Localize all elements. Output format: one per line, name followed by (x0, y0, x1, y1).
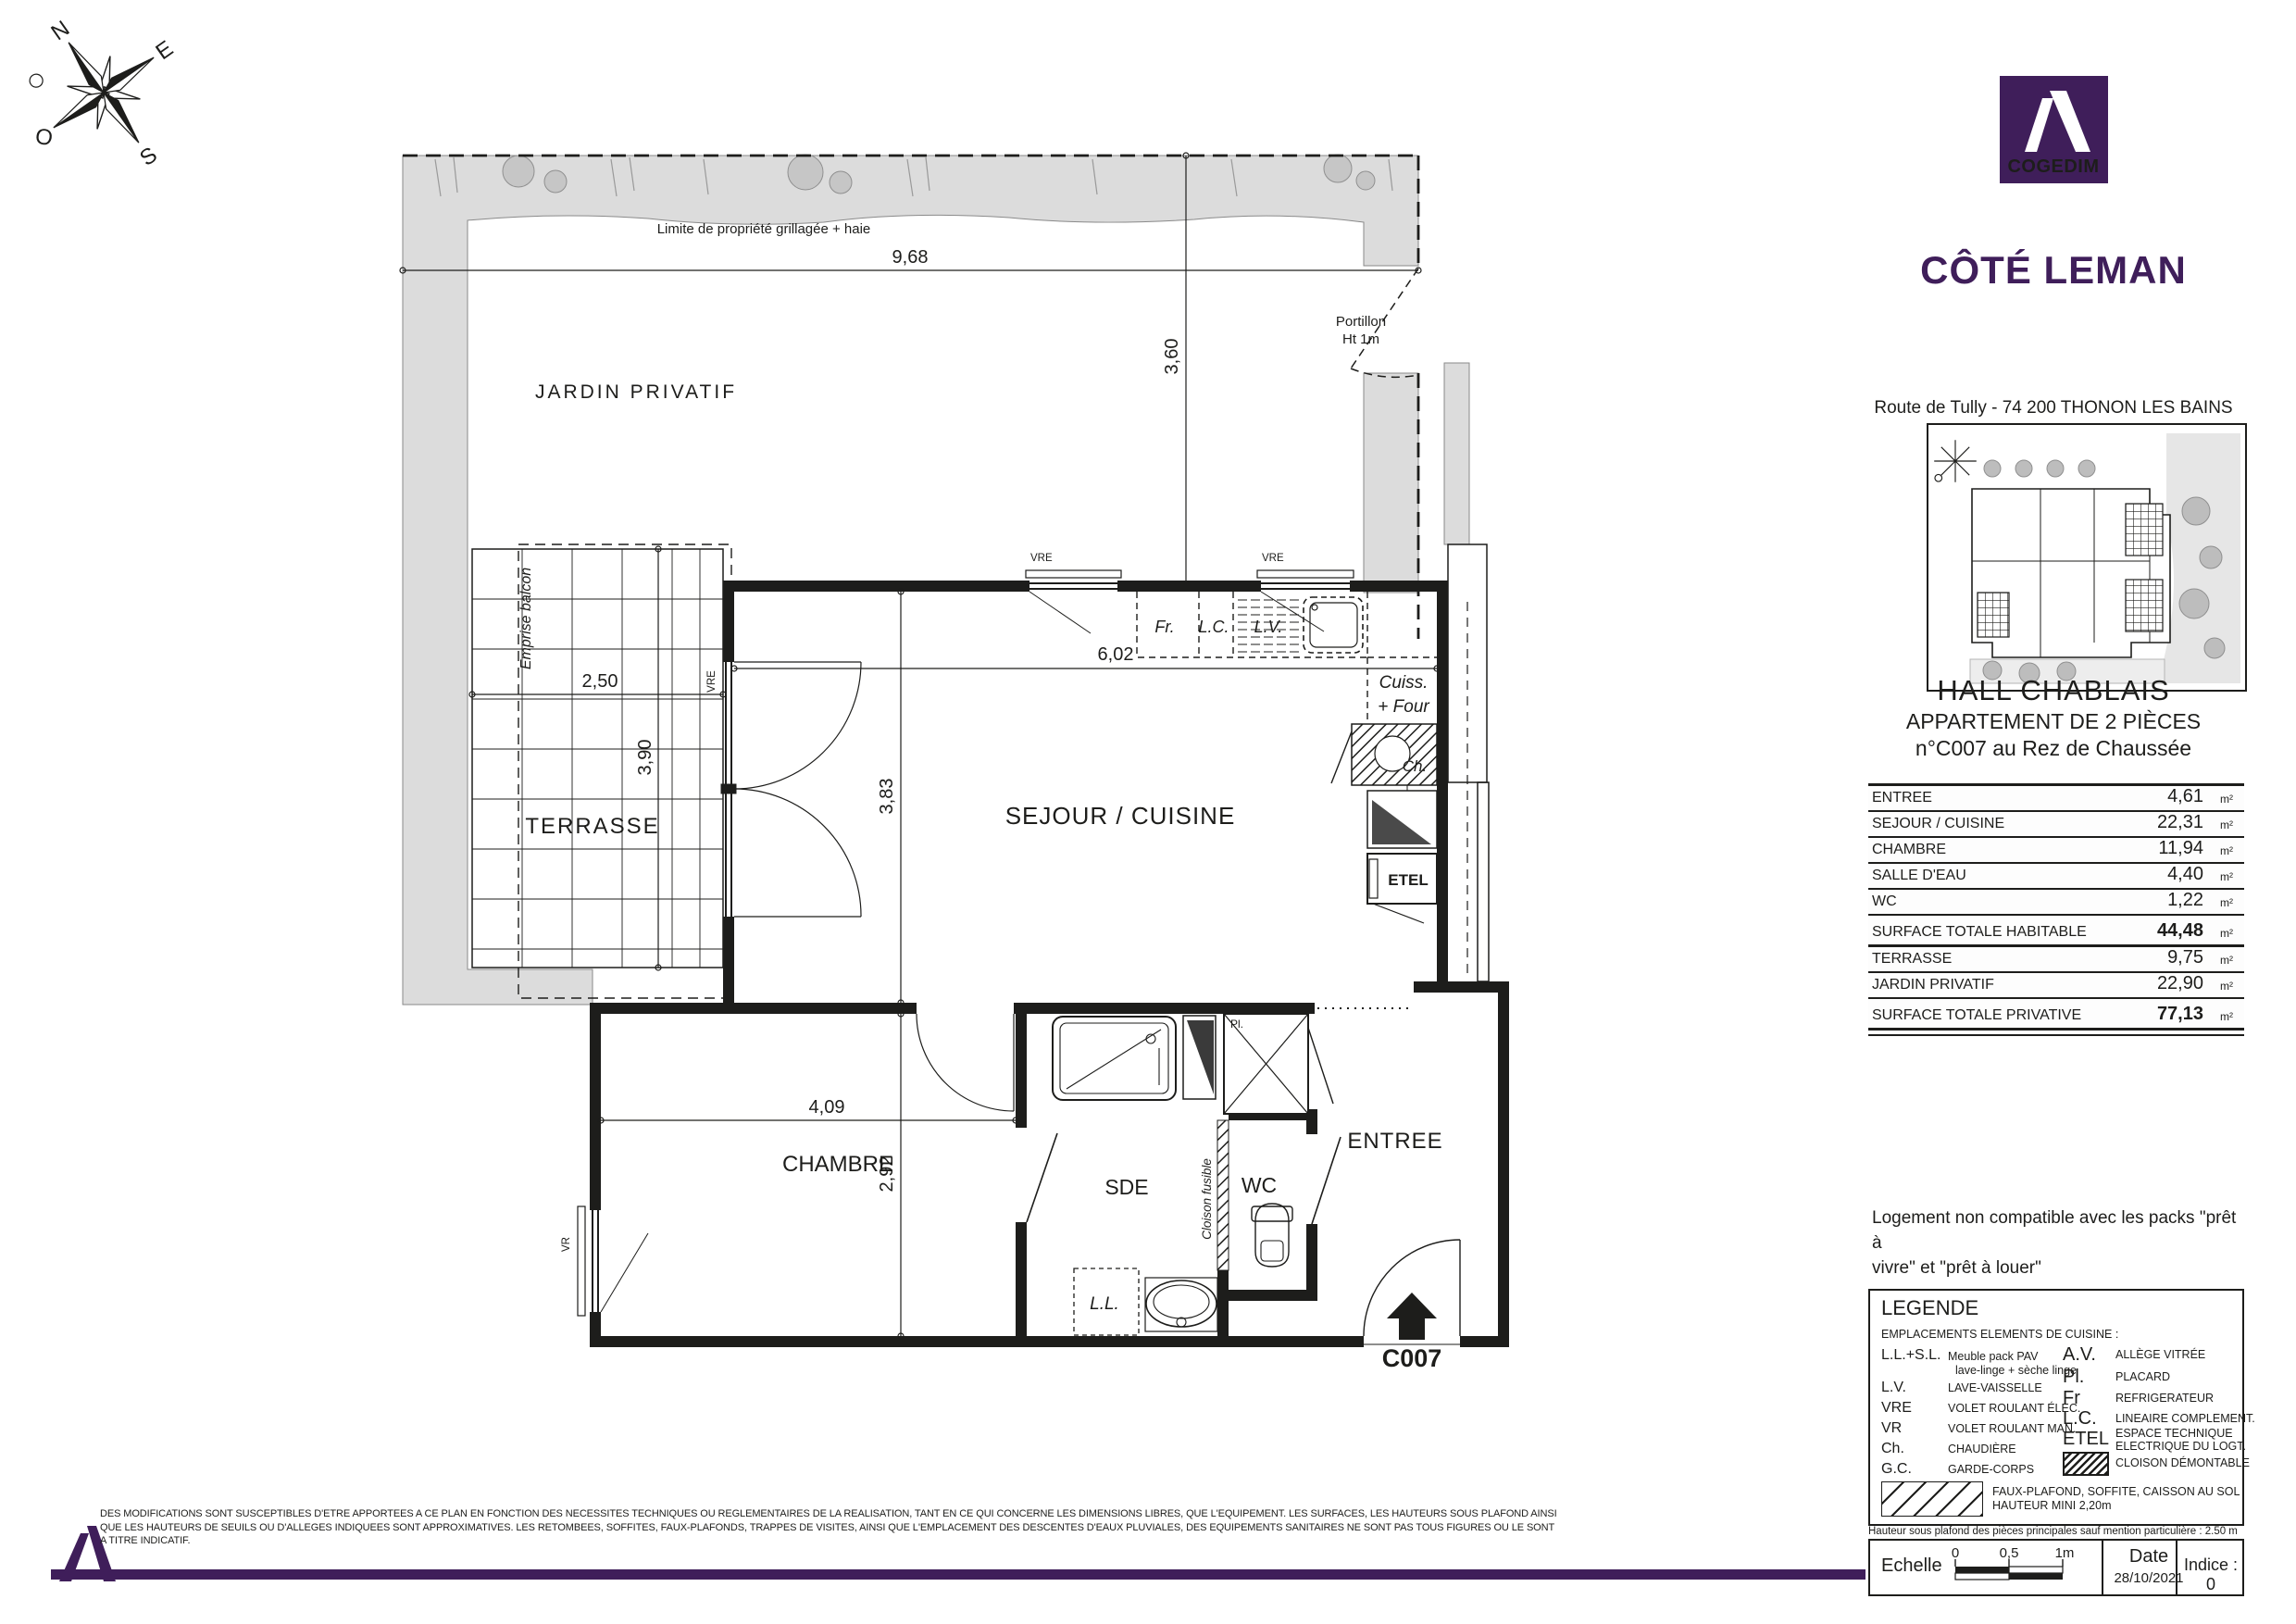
dim-9-68: 9,68 (892, 247, 929, 268)
program-title: CÔTÉ LEMAN (1865, 248, 2241, 293)
door-sde (1027, 1133, 1057, 1222)
dim-3-90: 3,90 (635, 740, 655, 776)
legend-desc: LAVE-VAISSELLE (1948, 1381, 2042, 1394)
cloison-demontable-swatch (2063, 1452, 2109, 1476)
svg-text:1m: 1m (2055, 1545, 2075, 1561)
room-label-bedroom: CHAMBRE (782, 1152, 893, 1177)
dim-2-50: 2,50 (582, 671, 618, 692)
legend-abbr: Fr (2063, 1388, 2080, 1409)
legend-desc: CHAUDIÈRE (1948, 1443, 2016, 1455)
legend-desc: VOLET ROULANT MAN. (1948, 1422, 2076, 1435)
legend-abbr: L.L.+S.L. (1881, 1347, 1941, 1364)
compass-s: S (135, 143, 162, 171)
legend-desc: FAUX-PLAFOND, SOFFITE, CAISSON AU SOL (1992, 1485, 2240, 1498)
compass-o: O (33, 124, 55, 152)
legend-desc: HAUTEUR MINI 2,20m (1992, 1499, 2112, 1512)
kitchen-lv-label: L.V. (1254, 618, 1283, 636)
fusible-partition (1217, 1120, 1229, 1270)
legend-desc: Meuble pack PAV (1948, 1350, 2039, 1363)
ceiling-height-note: Hauteur sous plafond des pièces principa… (1868, 1526, 2244, 1537)
hall-title: HALL CHABLAIS (1865, 674, 2241, 707)
legend-desc: CLOISON DÉMONTABLE (2115, 1456, 2250, 1469)
legend-abbr: VR (1881, 1420, 1902, 1437)
legend-abbr: L.C. (2063, 1408, 2097, 1430)
program-address: Route de Tully - 74 200 THONON LES BAINS (1865, 398, 2241, 418)
room-label-entry: ENTREE (1347, 1129, 1442, 1154)
title-block-strip: Echelle 0 0,5 1m Date 28/10/2021 Indice … (1868, 1539, 2244, 1596)
terrace (472, 544, 731, 998)
date-value: 28/10/2021 (2105, 1570, 2192, 1586)
kitchen-sink (1304, 597, 1363, 653)
legend-desc: ELECTRIQUE DU LOGT. (2115, 1440, 2246, 1453)
compass-n: N (46, 16, 74, 45)
legend-abbr: ETEL (2063, 1429, 2109, 1450)
french-door-vre-label: VRE (706, 670, 717, 693)
table-row: SEJOUR / CUISINE22,31m² (1868, 812, 2244, 838)
table-row-total: SURFACE TOTALE HABITABLE44,48m² (1868, 916, 2244, 947)
window-vre-2-label: VRE (1262, 553, 1284, 564)
scale-label: Echelle (1881, 1555, 1942, 1577)
toilet (1252, 1204, 1292, 1267)
washer-ll-label: L.L. (1090, 1294, 1119, 1314)
washbasin (1145, 1278, 1217, 1331)
divider (2102, 1541, 2103, 1594)
etel-label: ETEL (1388, 871, 1428, 889)
kitchen-lc-label: L.C. (1198, 618, 1229, 636)
legend-abbr: VRE (1881, 1400, 1912, 1417)
dim-3-60: 3,60 (1162, 339, 1182, 375)
packs-note: Logement non compatible avec les packs "… (1872, 1206, 2242, 1280)
unit-code-label: C007 (1382, 1344, 1442, 1372)
gate-label-1: Portillon (1336, 314, 1386, 330)
indice-value: Indice : 0 (2181, 1555, 2240, 1594)
date-label: Date (2113, 1546, 2185, 1568)
cogedim-logo: COGEDIM (2000, 76, 2108, 183)
fusible-label: Cloison fusible (1200, 1158, 1214, 1240)
dim-6-02: 6,02 (1098, 644, 1134, 665)
surfaces-table: ENTREE4,61m² SEJOUR / CUISINE22,31m² CHA… (1868, 783, 2244, 1036)
faux-plafond-swatch (1881, 1481, 1983, 1517)
floor-plan-sheet: N E S O Limite de propriété grillagée + … (0, 0, 2296, 1624)
dim-3-83: 3,83 (877, 779, 897, 815)
room-label-terrace: TERRASSE (525, 814, 659, 839)
table-bottom-rule (1868, 1031, 2244, 1036)
compass-e: E (152, 36, 179, 65)
legend-desc: GARDE-CORPS (1948, 1463, 2034, 1476)
svg-text:0,5: 0,5 (2000, 1545, 2019, 1561)
kitchen-cuiss-label-1: Cuiss. (1379, 673, 1429, 693)
cogedim-logo-text: COGEDIM (2007, 156, 2099, 177)
sde-cabinet (1183, 1016, 1216, 1099)
footer-brand-band (51, 1569, 1865, 1580)
balcony-label: Emprise balcon (518, 568, 534, 669)
table-row: CHAMBRE11,94m² (1868, 838, 2244, 864)
boiler-label: Ch. (1403, 757, 1427, 775)
legend-desc: REFRIGERATEUR (2115, 1392, 2214, 1405)
closet-pl-label: Pl. (1230, 1018, 1243, 1031)
legend-desc: LINEAIRE COMPLEMENT. (2115, 1412, 2255, 1425)
shower (1053, 1017, 1176, 1100)
dim-4-09: 4,09 (809, 1097, 845, 1118)
disclaimer-text: DES MODIFICATIONS SONT SUSCEPTIBLES D'ET… (100, 1507, 1859, 1548)
legend-title: LEGENDE (1881, 1296, 1978, 1320)
room-label-garden: JARDIN PRIVATIF (535, 381, 737, 403)
legend-intro: EMPLACEMENTS ELEMENTS DE CUISINE : (1881, 1328, 2118, 1341)
room-label-wc: WC (1242, 1173, 1277, 1197)
legend-desc: ESPACE TECHNIQUE (2115, 1427, 2233, 1440)
compass-rose: N E S O (0, 0, 222, 219)
legend-abbr: L.V. (1881, 1380, 1906, 1396)
door-wc (1312, 1137, 1341, 1224)
table-row-total: SURFACE TOTALE PRIVATIVE77,13m² (1868, 999, 2244, 1031)
kitchen-fr-label: Fr. (1154, 618, 1174, 636)
table-row: JARDIN PRIVATIF22,90m² (1868, 973, 2244, 999)
boundary-label: Limite de propriété grillagée + haie (657, 221, 871, 237)
window-vr-label: VR (561, 1237, 572, 1252)
legend-desc: ALLÈGE VITRÉE (2115, 1348, 2205, 1361)
table-row: ENTREE4,61m² (1868, 786, 2244, 812)
legend-abbr: A.V. (2063, 1344, 2096, 1366)
walls (590, 581, 1509, 1347)
window-vre-1-label: VRE (1030, 553, 1053, 564)
legend-abbr: G.C. (1881, 1461, 1912, 1478)
table-row: TERRASSE9,75m² (1868, 947, 2244, 973)
apartment-number: n°C007 au Rez de Chaussée (1865, 736, 2241, 761)
room-label-sde: SDE (1104, 1175, 1148, 1199)
table-row: WC1,22m² (1868, 890, 2244, 916)
legend-abbr: Pl. (2063, 1367, 2084, 1388)
kitchen-cuiss-label-2: + Four (1378, 697, 1429, 717)
table-row: SALLE D'EAU4,40m² (1868, 864, 2244, 890)
room-label-living: SEJOUR / CUISINE (1005, 802, 1236, 830)
window-vr-bedroom (578, 1206, 648, 1316)
svg-text:0: 0 (1952, 1545, 1959, 1561)
french-door (721, 662, 861, 917)
legend-desc: lave-linge + sèche linge (1955, 1364, 2077, 1377)
legend-desc: PLACARD (2115, 1370, 2170, 1383)
legend-desc: VOLET ROULANT ÉLEC. (1948, 1402, 2080, 1415)
window-vre-1 (1026, 570, 1121, 633)
legend-abbr: Ch. (1881, 1441, 1904, 1457)
scale-bar: 0 0,5 1m (1950, 1544, 2098, 1591)
door-bedroom (917, 1014, 1014, 1111)
dimension-lines-living (731, 589, 1440, 1006)
entry-arrow (1387, 1293, 1437, 1340)
kitchen-cabinet (1367, 791, 1437, 848)
site-plan-thumbnail (1928, 424, 2246, 691)
gate-label-2: Ht 1m (1342, 331, 1379, 347)
apartment-type: APPARTEMENT DE 2 PIÈCES (1865, 709, 2241, 734)
dimension-lines-garden (400, 153, 1421, 589)
